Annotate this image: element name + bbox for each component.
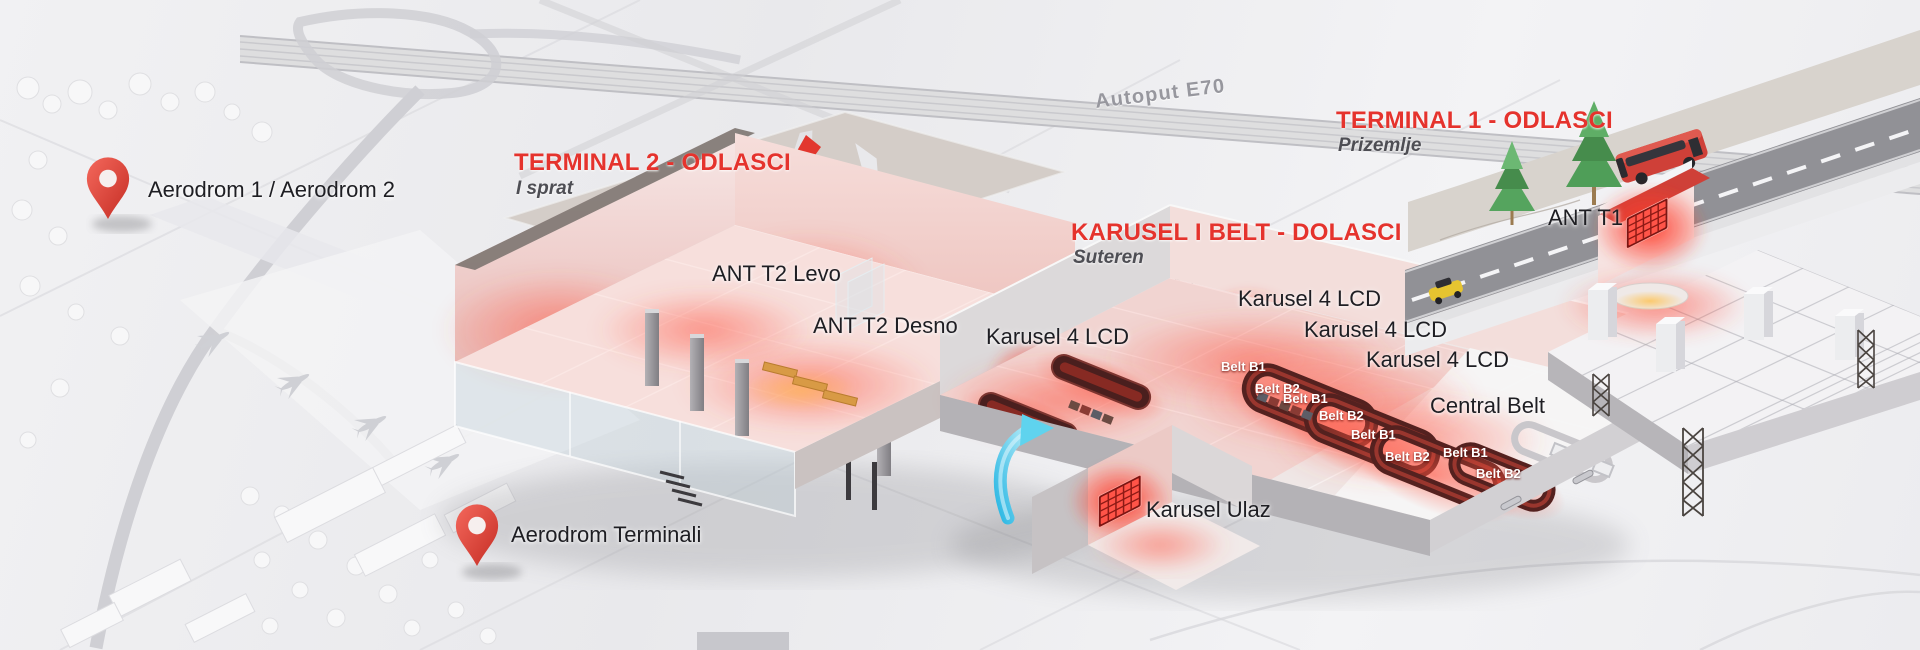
belt-label: Belt B1 [1221, 360, 1266, 374]
screen-label-karusel-lcd-left: Karusel 4 LCD [986, 325, 1129, 349]
belt-label: Belt B2 [1385, 450, 1430, 464]
belt-label: Belt B2 [1319, 409, 1364, 423]
airport-advertising-map: Aerodrom 1 / Aerodrom 2 Aerodrom Termina… [0, 0, 1920, 650]
screen-label-ant-t2-levo: ANT T2 Levo [712, 262, 841, 286]
terminal2-title: TERMINAL 2 - ODLASCI [514, 150, 791, 176]
belt-label: Belt B1 [1443, 446, 1488, 460]
karusel-title: KARUSEL I BELT - DOLASCI [1071, 220, 1402, 246]
pin-label-aerodrom-terminali: Aerodrom Terminali [511, 523, 701, 547]
screen-label-karusel-lcd-3: Karusel 4 LCD [1366, 348, 1509, 372]
terminal1-title: TERMINAL 1 - ODLASCI [1336, 108, 1613, 134]
ground-slab-fragment [697, 632, 789, 650]
screen-label-ant-t2-desno: ANT T2 Desno [813, 314, 958, 338]
pin-label-aerodrom-1-2: Aerodrom 1 / Aerodrom 2 [148, 178, 395, 202]
screen-label-karusel-ulaz: Karusel Ulaz [1146, 498, 1271, 522]
scene-illustration [0, 0, 1920, 650]
terminal2-subtitle: I sprat [516, 179, 573, 200]
karusel-subtitle: Suteren [1073, 248, 1144, 269]
screen-label-karusel-lcd-1: Karusel 4 LCD [1238, 287, 1381, 311]
map-pin-aerodrom-1-2[interactable] [87, 157, 152, 232]
belt-label: Belt B1 [1283, 392, 1328, 406]
terminal1-subtitle: Prizemlje [1338, 136, 1421, 157]
belt-label: Belt B2 [1476, 467, 1521, 481]
screen-label-ant-t1: ANT T1 [1548, 206, 1623, 230]
screen-label-karusel-lcd-2: Karusel 4 LCD [1304, 318, 1447, 342]
central-belt-label: Central Belt [1430, 394, 1545, 418]
belt-label: Belt B1 [1351, 428, 1396, 442]
